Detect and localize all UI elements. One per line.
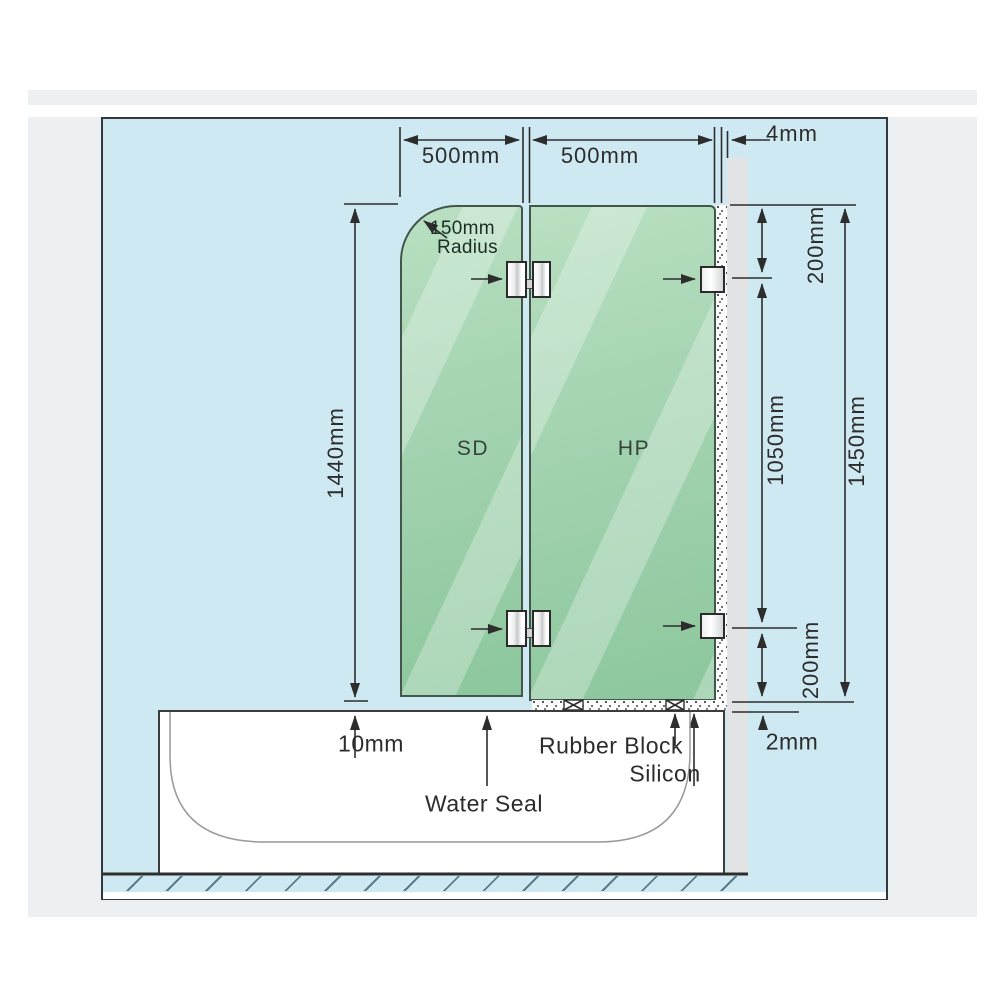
wall xyxy=(727,158,748,874)
dim-tub-edge-gap: 2mm xyxy=(766,729,819,756)
dim-bottom-gap: 10mm xyxy=(338,731,404,758)
corner-radius-word: Radius xyxy=(430,238,498,257)
corner-radius-value: 150mm xyxy=(430,218,495,239)
dim-wall-gap: 4mm xyxy=(766,121,818,147)
background-band xyxy=(28,105,977,117)
bottom-wall-bracket xyxy=(700,613,725,639)
frame-bottom-margin xyxy=(103,892,886,899)
label-water-seal: Water Seal xyxy=(425,791,543,818)
label-rubber-block: Rubber Block xyxy=(539,733,683,760)
dim-hp-width: 500mm xyxy=(561,143,639,169)
top-hinge-leaf-left xyxy=(506,261,527,298)
dim-sd-height: 1440mm xyxy=(323,407,349,499)
panel-label-hp: HP xyxy=(618,437,650,461)
bottom-silicon-bead xyxy=(532,700,727,710)
dim-hp-total-height: 1450mm xyxy=(844,395,870,487)
dim-bottom-hinge-offset: 200mm xyxy=(798,621,824,699)
shower-screen-diagram-page: 500mm 500mm 4mm 150mm Radius 1440mm 200m… xyxy=(0,0,1000,1000)
bottom-hinge-leaf-left xyxy=(506,610,527,647)
corner-radius-note: 150mm Radius xyxy=(430,219,498,257)
panel-label-sd: SD xyxy=(457,437,489,461)
top-wall-bracket xyxy=(700,266,725,293)
label-silicon: Silicon xyxy=(629,761,700,788)
floor-hatching xyxy=(104,876,748,891)
top-hinge-leaf-right xyxy=(532,261,551,298)
dim-top-hinge-offset: 200mm xyxy=(803,206,829,284)
dim-hinge-spacing: 1050mm xyxy=(763,394,789,486)
bottom-hinge-leaf-right xyxy=(532,610,551,647)
dim-sd-width: 500mm xyxy=(422,143,500,169)
